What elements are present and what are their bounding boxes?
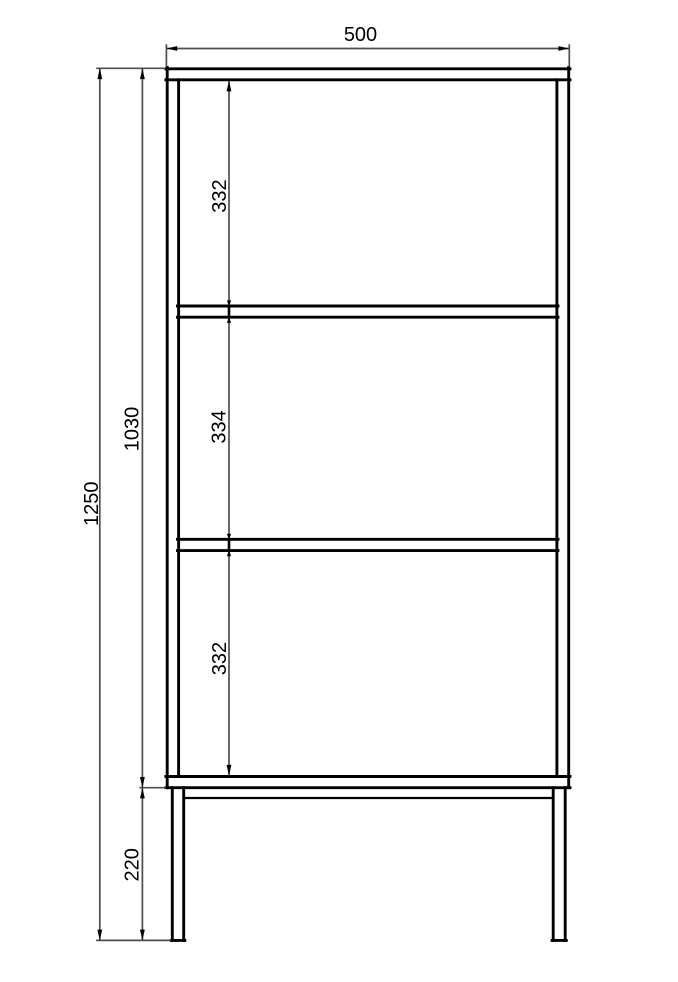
svg-text:334: 334	[209, 410, 231, 443]
svg-text:1250: 1250	[81, 482, 103, 527]
svg-text:500: 500	[344, 24, 377, 46]
svg-text:332: 332	[209, 179, 231, 212]
svg-text:220: 220	[122, 848, 144, 881]
svg-text:332: 332	[209, 642, 231, 675]
svg-text:1030: 1030	[121, 407, 143, 452]
